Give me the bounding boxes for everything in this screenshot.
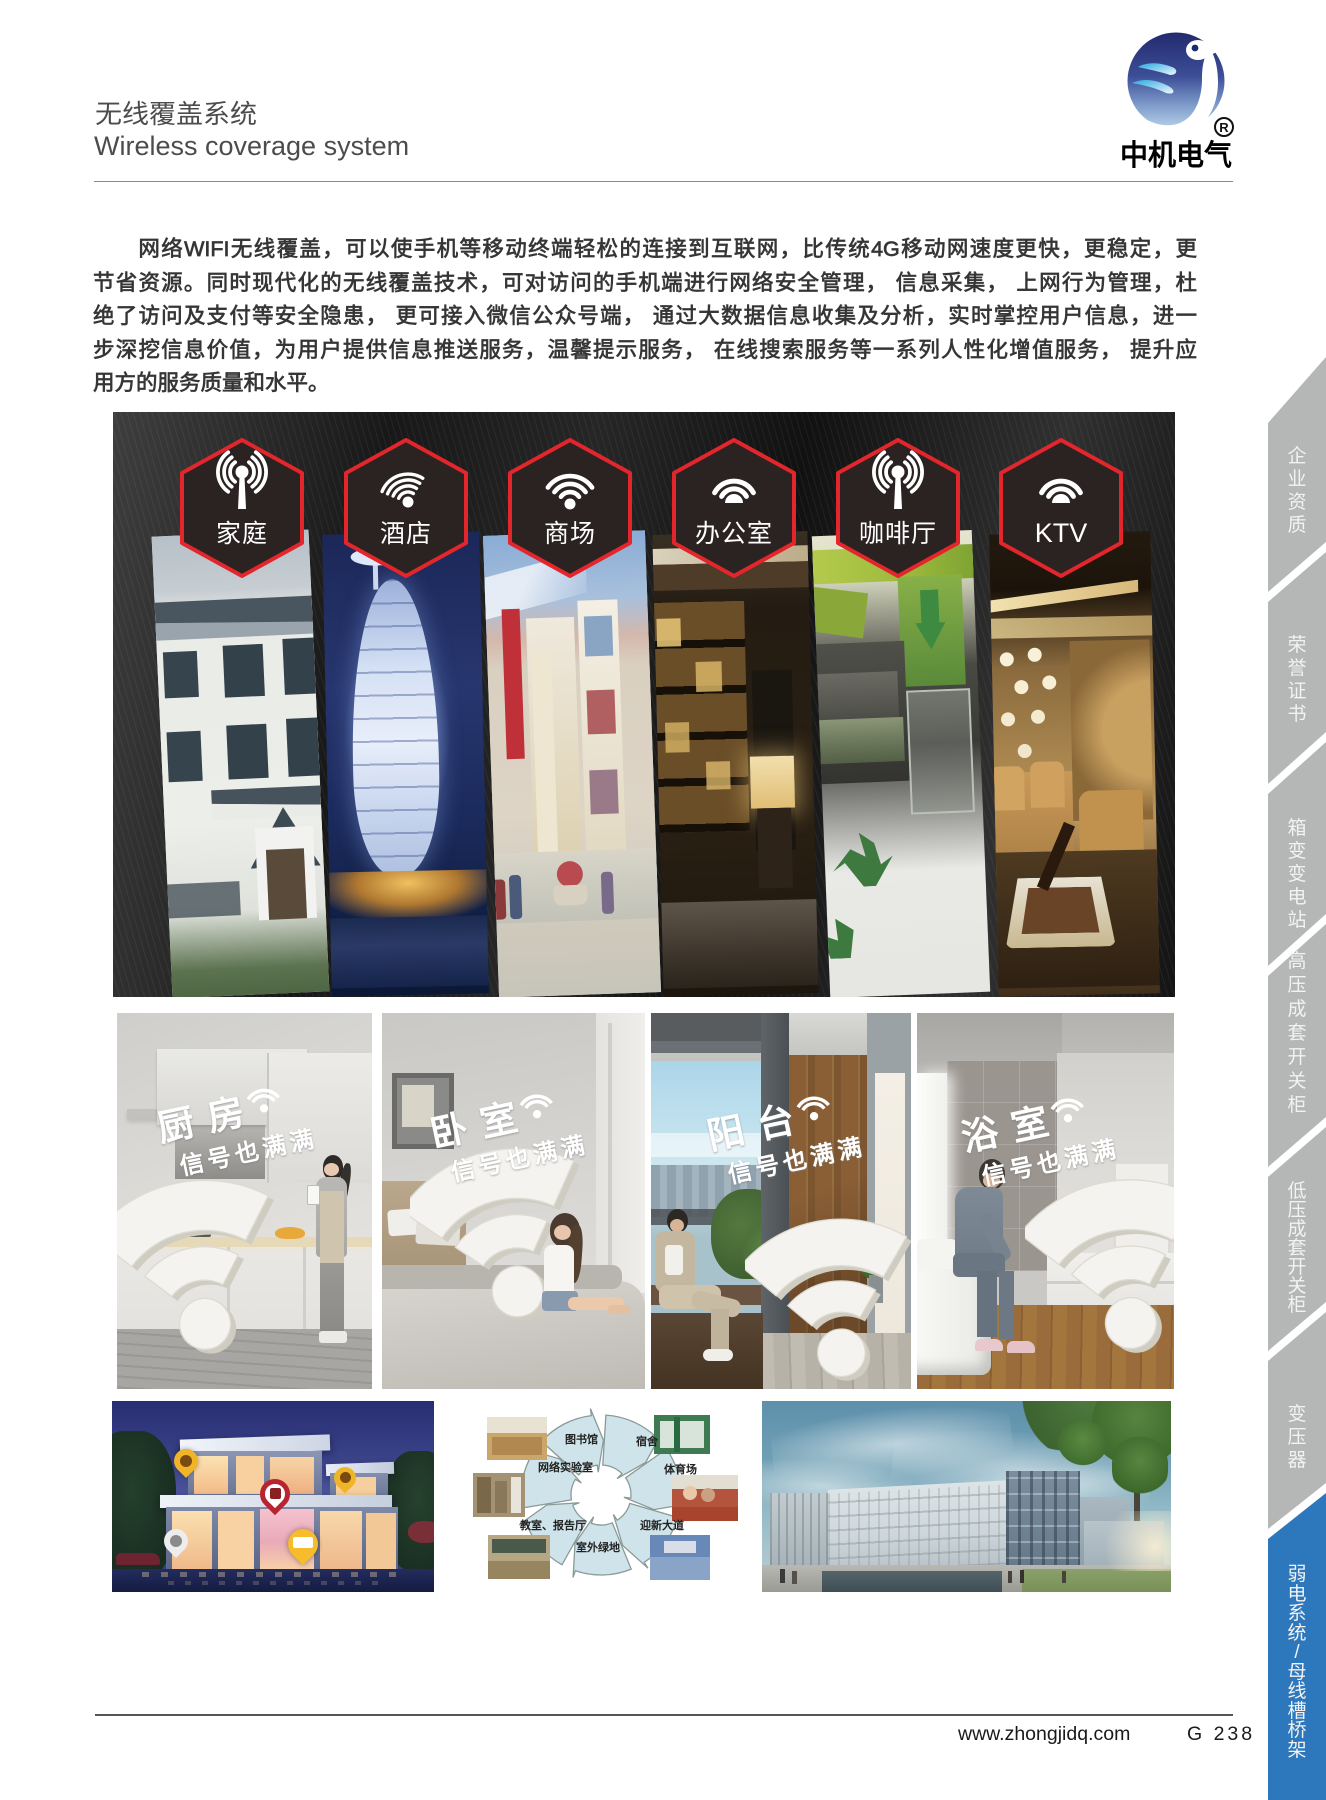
- svg-text:网络实验室: 网络实验室: [538, 1460, 593, 1474]
- svg-text:教室、报告厅: 教室、报告厅: [519, 1518, 586, 1532]
- svg-text:图书馆: 图书馆: [565, 1432, 598, 1446]
- svg-text:迎新大道: 迎新大道: [640, 1518, 684, 1532]
- svg-text:家庭: 家庭: [216, 520, 268, 548]
- svg-text:商场: 商场: [544, 520, 596, 548]
- svg-text:办公室: 办公室: [695, 520, 773, 548]
- svg-text:体育场: 体育场: [664, 1462, 697, 1476]
- svg-text:KTV: KTV: [1035, 518, 1088, 548]
- svg-text:咖啡厅: 咖啡厅: [859, 520, 937, 548]
- svg-text:酒店: 酒店: [380, 520, 432, 548]
- svg-text:中机电气: 中机电气: [1120, 139, 1232, 172]
- svg-text:室外绿地: 室外绿地: [576, 1540, 620, 1554]
- svg-text:宿舍: 宿舍: [636, 1434, 659, 1448]
- svg-text:无线覆盖系统: 无线覆盖系统: [95, 99, 257, 129]
- svg-text:R: R: [1219, 120, 1229, 135]
